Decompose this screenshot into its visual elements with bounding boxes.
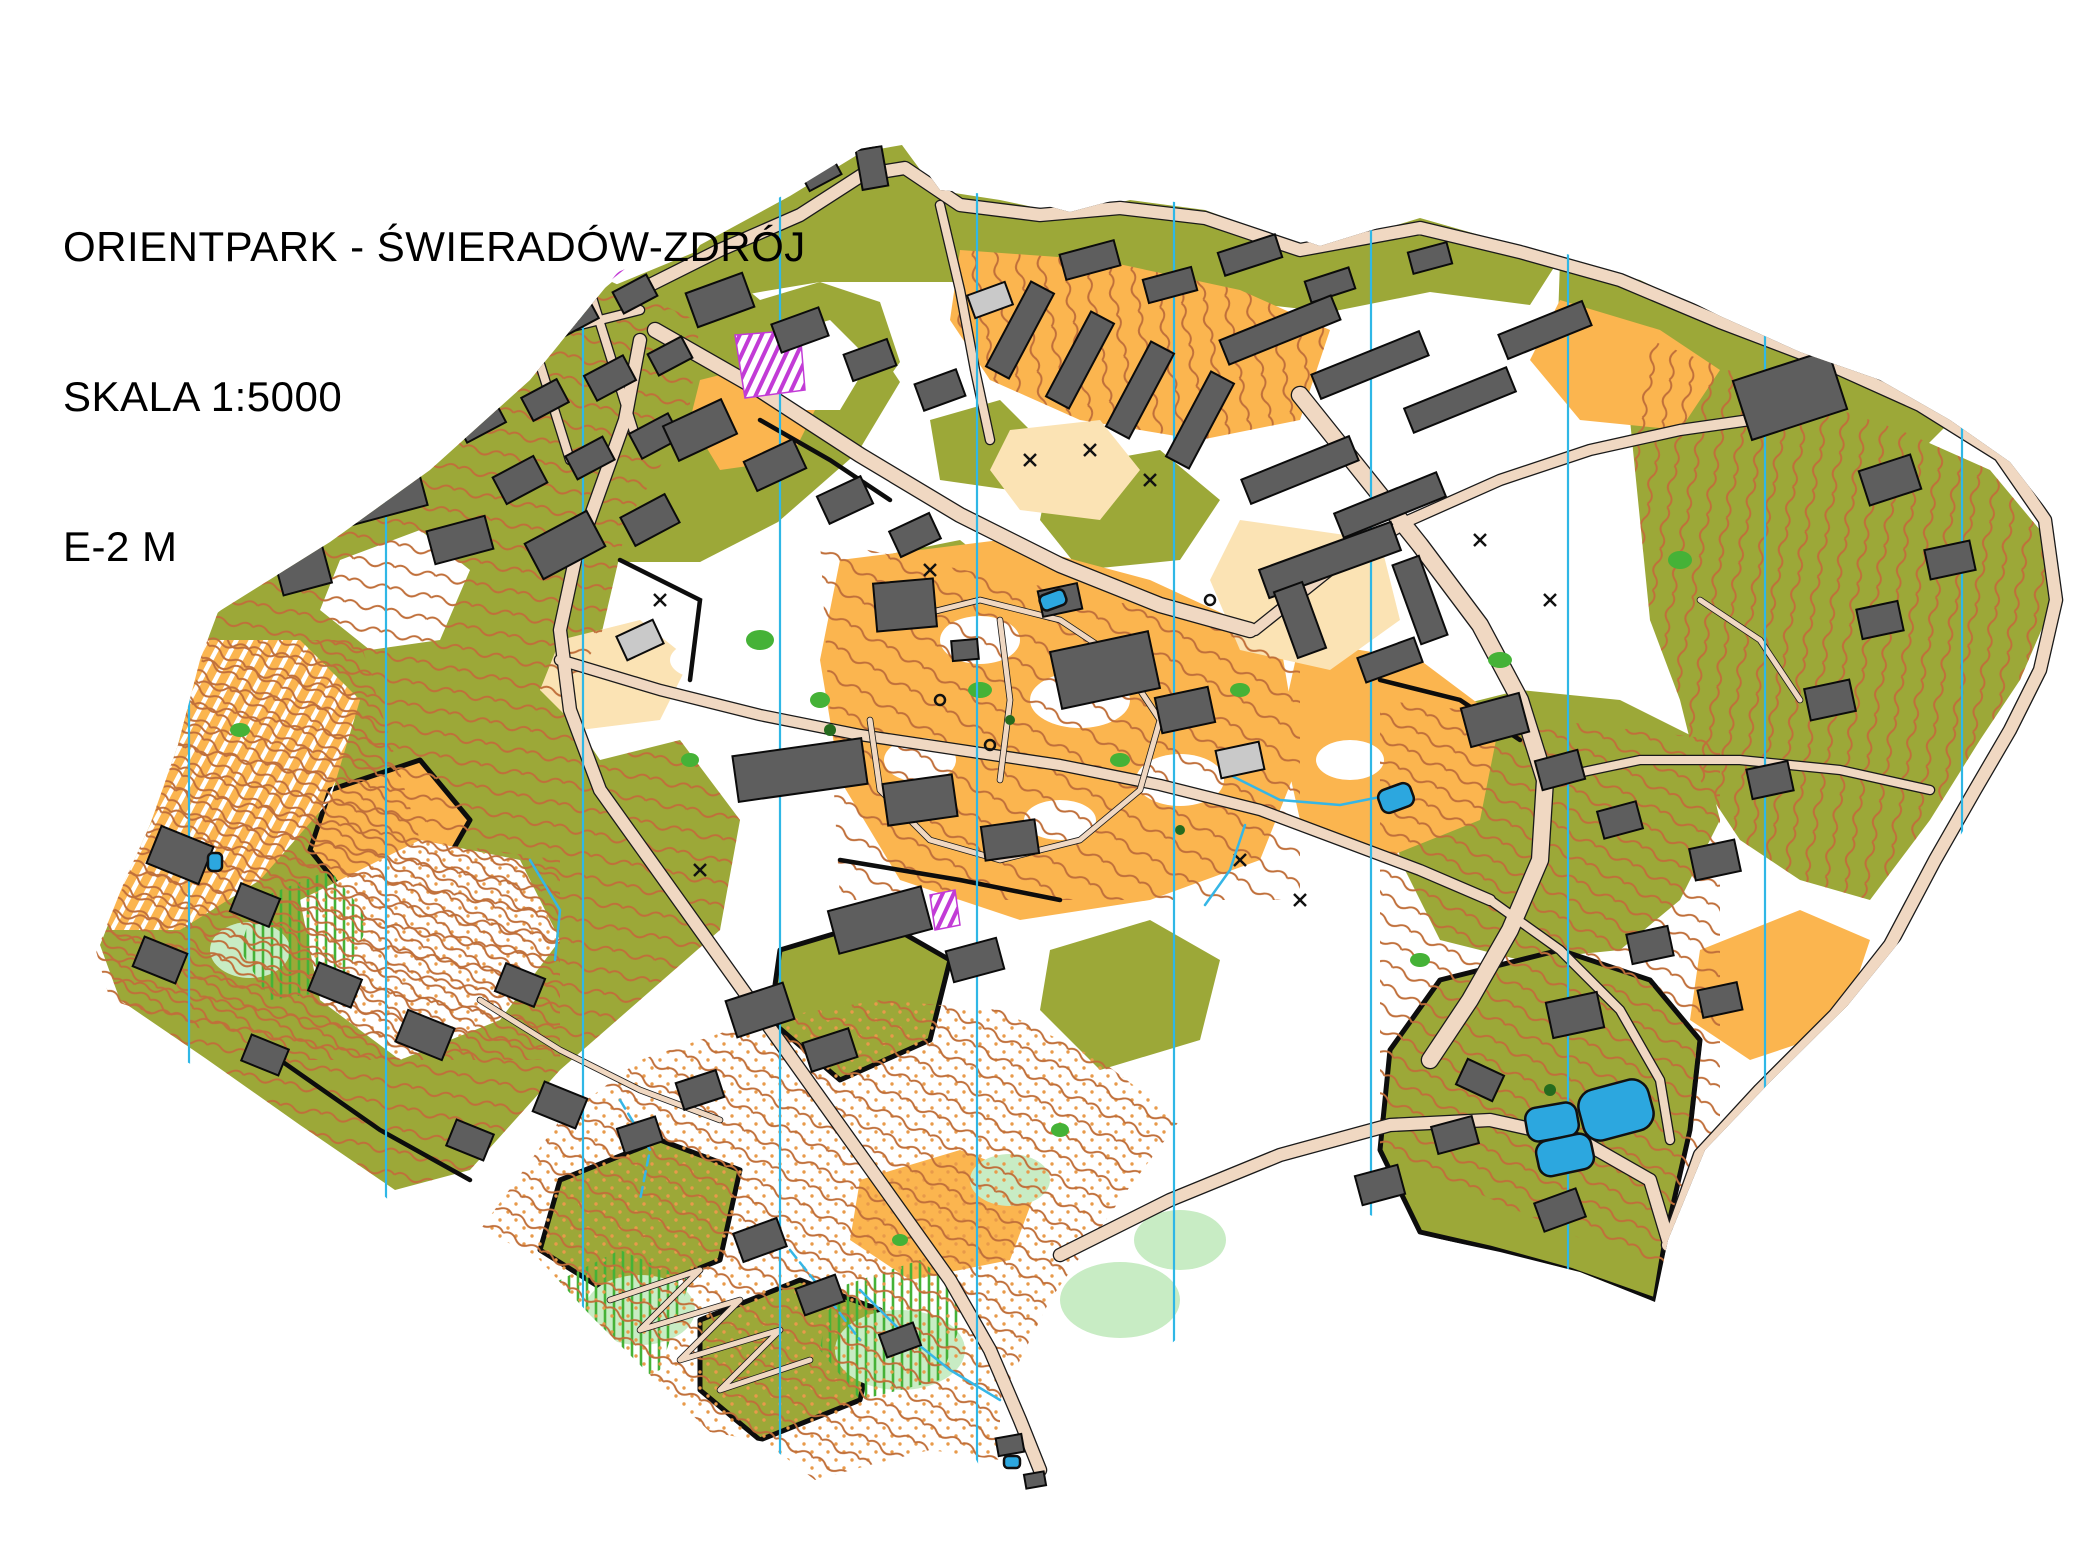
map-contour-interval: E-2 M xyxy=(63,522,806,572)
bush xyxy=(1410,953,1430,967)
building xyxy=(951,639,979,661)
tree xyxy=(824,724,836,736)
tree xyxy=(1005,715,1015,725)
bush xyxy=(810,692,830,708)
bush xyxy=(1230,683,1250,697)
pond xyxy=(208,853,222,871)
pond xyxy=(175,1135,195,1149)
bush xyxy=(1051,1123,1069,1137)
building xyxy=(996,1434,1025,1456)
tree xyxy=(1544,1084,1556,1096)
bush xyxy=(1110,753,1130,767)
building xyxy=(1024,1471,1046,1488)
pond xyxy=(1004,1456,1020,1468)
map-title: ORIENTPARK - ŚWIERADÓW-ZDRÓJ xyxy=(63,222,806,272)
bush xyxy=(892,1234,908,1246)
map-scale: SKALA 1:5000 xyxy=(63,372,806,422)
building xyxy=(873,578,937,631)
building xyxy=(981,819,1039,860)
tree xyxy=(1175,825,1185,835)
building xyxy=(882,774,957,825)
map-title-block: ORIENTPARK - ŚWIERADÓW-ZDRÓJ SKALA 1:500… xyxy=(63,122,806,672)
bush xyxy=(1488,652,1512,668)
open-white-patch xyxy=(1316,740,1384,780)
bush xyxy=(1668,551,1692,569)
light-green-patch xyxy=(1060,1262,1180,1338)
building xyxy=(856,146,889,190)
bush xyxy=(968,682,992,698)
out-of-bounds-area xyxy=(930,890,960,930)
bush xyxy=(681,753,699,767)
orienteering-map-page: ORIENTPARK - ŚWIERADÓW-ZDRÓJ SKALA 1:500… xyxy=(0,0,2091,1567)
bush xyxy=(230,723,250,737)
